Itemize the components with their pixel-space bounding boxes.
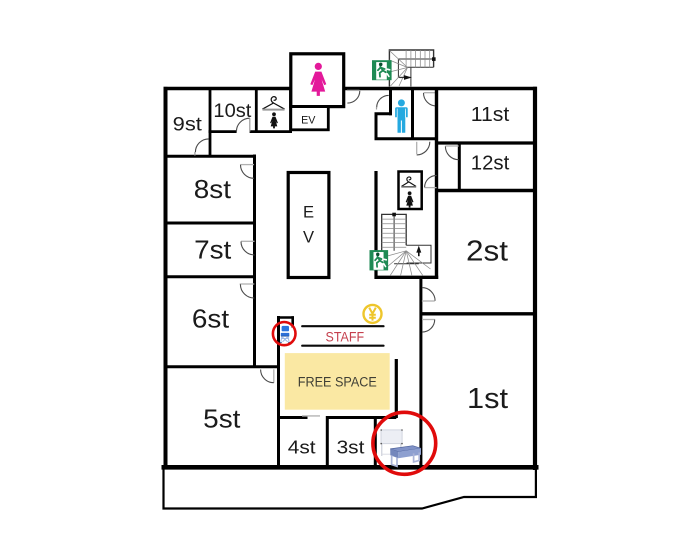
svg-text:STAFF: STAFF: [326, 329, 365, 345]
svg-text:11st: 11st: [471, 103, 510, 126]
svg-text:12st: 12st: [471, 152, 510, 175]
svg-text:2st: 2st: [466, 235, 508, 267]
svg-text:9st: 9st: [173, 114, 203, 135]
svg-text:4st: 4st: [288, 437, 317, 458]
svg-text:7st: 7st: [194, 234, 232, 264]
svg-text:FREE SPACE: FREE SPACE: [298, 374, 377, 390]
svg-text:5st: 5st: [203, 403, 241, 433]
svg-text:10st: 10st: [213, 101, 252, 122]
svg-text:E: E: [303, 203, 314, 222]
svg-text:6st: 6st: [192, 303, 230, 333]
svg-text:V: V: [303, 227, 314, 246]
svg-text:3st: 3st: [337, 437, 366, 458]
svg-text:1st: 1st: [467, 383, 508, 415]
svg-text:8st: 8st: [194, 174, 232, 204]
svg-text:EV: EV: [301, 115, 316, 127]
